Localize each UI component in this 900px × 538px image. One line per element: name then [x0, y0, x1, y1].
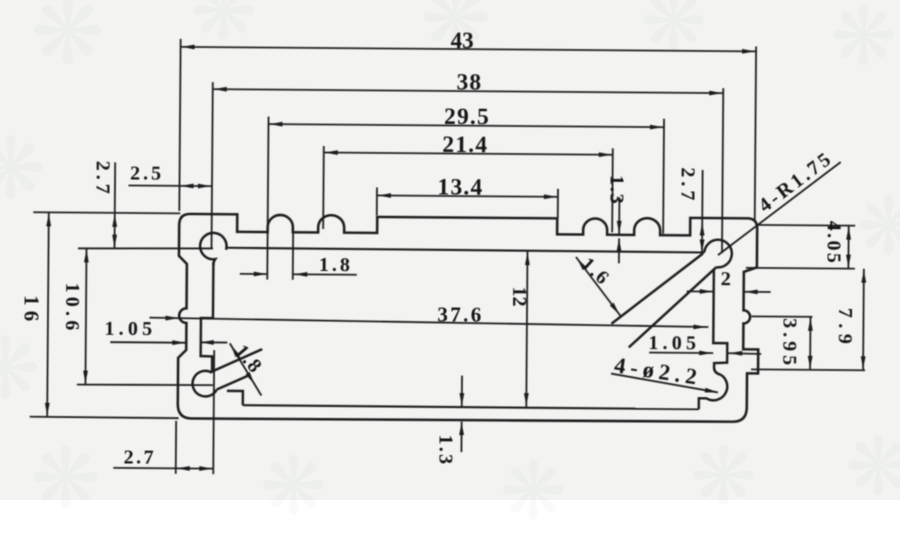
svg-text:12: 12 — [508, 286, 530, 306]
svg-text:7.9: 7.9 — [834, 308, 856, 350]
svg-text:16: 16 — [19, 295, 43, 326]
svg-text:2.7: 2.7 — [91, 161, 113, 198]
svg-text:3.95: 3.95 — [778, 318, 800, 369]
svg-text:1.6: 1.6 — [577, 254, 614, 290]
svg-text:1.8: 1.8 — [319, 254, 353, 276]
svg-text:13.4: 13.4 — [437, 174, 483, 200]
svg-text:37.6: 37.6 — [437, 302, 484, 326]
svg-text:1.3: 1.3 — [434, 435, 456, 467]
svg-text:1.05: 1.05 — [104, 318, 156, 340]
svg-text:4-ø2.2: 4-ø2.2 — [613, 352, 704, 390]
svg-text:4-R1.75: 4-R1.75 — [755, 147, 838, 217]
svg-text:38: 38 — [456, 70, 482, 96]
svg-text:1.3: 1.3 — [605, 175, 627, 206]
svg-text:21.4: 21.4 — [442, 132, 488, 158]
svg-text:43: 43 — [451, 28, 474, 53]
svg-text:2.7: 2.7 — [676, 167, 698, 204]
svg-text:1.8: 1.8 — [230, 341, 267, 379]
svg-text:1.05: 1.05 — [648, 332, 700, 354]
svg-text:10.6: 10.6 — [61, 283, 83, 335]
svg-text:2.7: 2.7 — [124, 446, 157, 468]
svg-text:2.5: 2.5 — [130, 162, 164, 184]
svg-text:29.5: 29.5 — [444, 104, 490, 130]
svg-text:2: 2 — [721, 268, 731, 290]
svg-text:4.05: 4.05 — [822, 221, 844, 266]
